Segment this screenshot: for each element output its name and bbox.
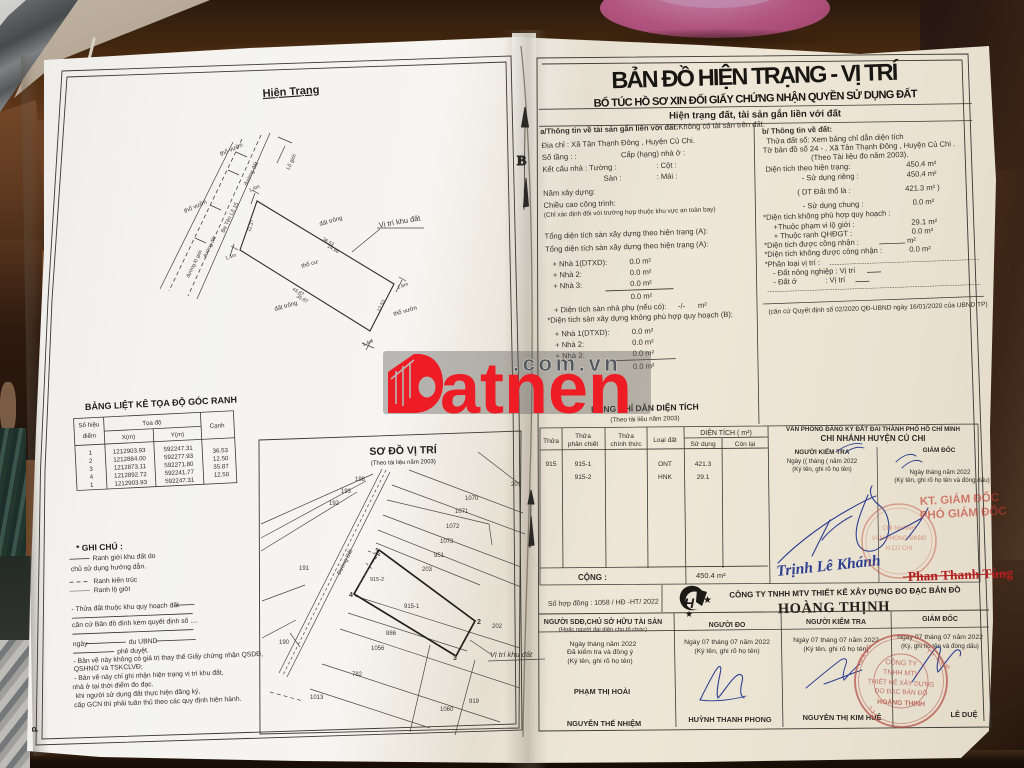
svg-text:atnen: atnen (440, 349, 632, 429)
